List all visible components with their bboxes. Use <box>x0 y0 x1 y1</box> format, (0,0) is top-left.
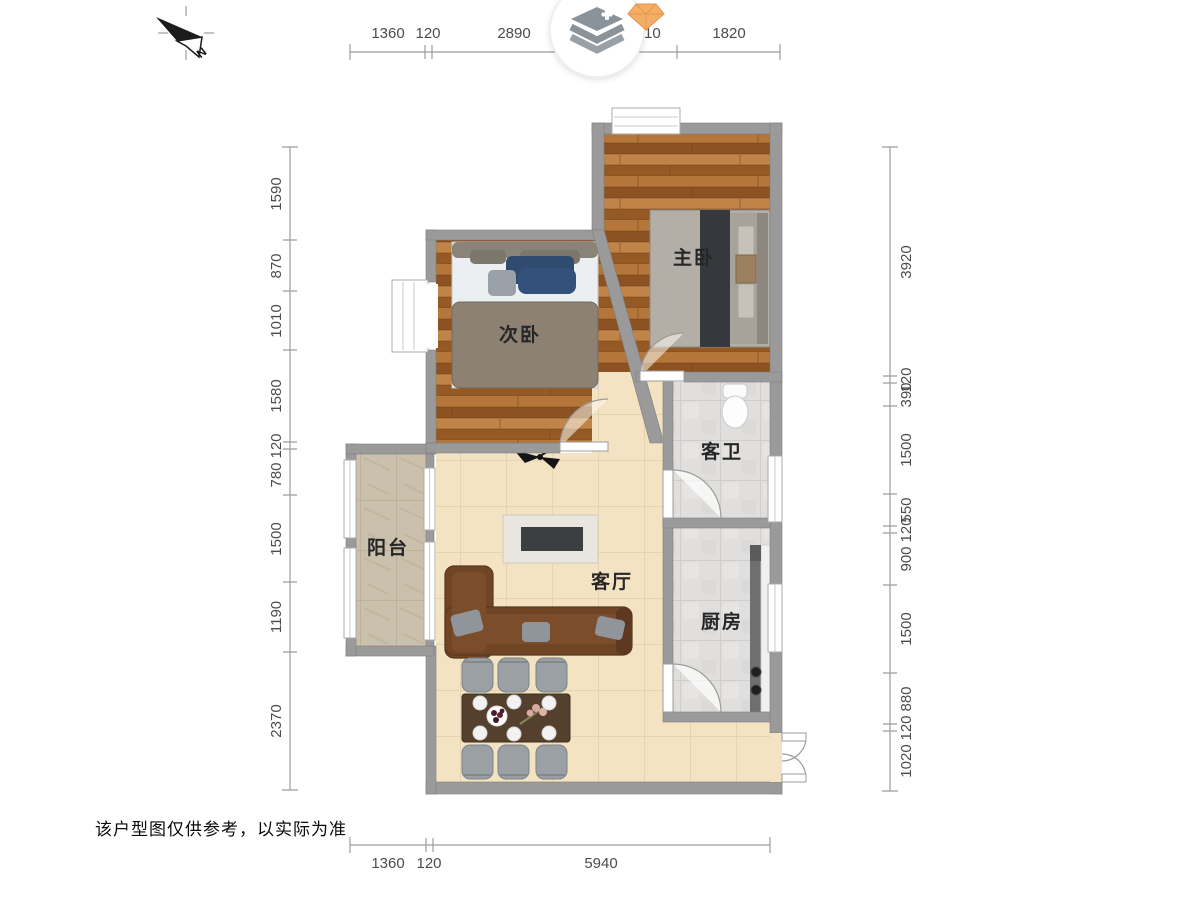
balcony-partition-window <box>424 468 435 640</box>
dimension-chain-bottom <box>350 837 770 853</box>
dim-right-390: 390 <box>898 382 915 407</box>
tv-screen <box>521 527 583 551</box>
second-bed <box>452 242 598 388</box>
dimension-labels-bottom: 1360 120 5940 <box>371 855 617 872</box>
dining-set <box>462 658 570 779</box>
bathroom-window <box>768 456 782 522</box>
dim-top-1360: 1360 <box>371 25 404 42</box>
dim-right-3920: 3920 <box>898 245 915 278</box>
dim-top-2890: 2890 <box>497 25 530 42</box>
living-room-label: 客厅 <box>591 570 633 593</box>
dim-right-1500b: 1500 <box>898 612 915 645</box>
second-bedroom-bay-window <box>392 280 438 352</box>
dim-right-120c: 120 <box>898 715 915 740</box>
balcony-left-window <box>344 460 356 638</box>
dimension-chain-right <box>882 147 898 791</box>
dim-left-780: 780 <box>268 462 285 487</box>
fruit-plate <box>487 706 507 726</box>
dim-right-880: 880 <box>898 686 915 711</box>
dim-right-1500: 1500 <box>898 433 915 466</box>
stove-burner <box>751 667 761 677</box>
dining-chairs-top <box>462 658 567 692</box>
dimension-labels-right: 3920 120 390 1500 550 120 900 1500 880 1… <box>898 245 915 777</box>
floorplan-page: 1360 120 2890 120 200 1010 1820 1360 120… <box>0 0 1200 900</box>
master-bay-window <box>612 108 680 134</box>
dining-chairs-bottom <box>462 745 567 779</box>
dim-left-1010: 1010 <box>268 304 285 337</box>
dim-bottom-120: 120 <box>416 855 441 872</box>
kitchen-counter <box>750 545 770 712</box>
dim-bottom-5940: 5940 <box>584 855 617 872</box>
master-bedroom-label: 主卧 <box>673 247 715 269</box>
dim-left-1580: 1580 <box>268 379 285 412</box>
floorplan-drawing: 1360 120 2890 120 200 1010 1820 1360 120… <box>0 0 1200 900</box>
dim-right-1020: 1020 <box>898 744 915 777</box>
dim-bottom-1360: 1360 <box>371 855 404 872</box>
dim-right-900: 900 <box>898 546 915 571</box>
disclaimer-text: 该户型图仅供参考，以实际为准 <box>95 820 347 839</box>
balcony-label: 阳台 <box>367 536 409 559</box>
dim-top-1820: 1820 <box>712 25 745 42</box>
dim-top-120: 120 <box>415 25 440 42</box>
dim-left-870: 870 <box>268 253 285 278</box>
kitchen-window <box>768 584 782 652</box>
dim-right-120b: 120 <box>898 517 915 542</box>
stove-burner <box>751 685 761 695</box>
dim-left-2370: 2370 <box>268 704 285 737</box>
north-arrow-icon: N <box>156 6 214 61</box>
master-bed <box>650 210 770 347</box>
dim-left-1500: 1500 <box>268 522 285 555</box>
tv-console <box>503 515 598 563</box>
toilet <box>722 384 748 428</box>
bathroom-label: 客卫 <box>701 440 743 463</box>
kitchen-label: 厨房 <box>701 610 743 633</box>
dim-left-1190: 1190 <box>268 601 285 633</box>
dim-left-1590: 1590 <box>268 177 285 210</box>
entry-double-door <box>770 733 806 782</box>
north-label: N <box>194 45 209 61</box>
dim-left-120: 120 <box>268 433 285 458</box>
dimension-labels-left: 1590 870 1010 1580 120 780 1500 1190 237… <box>268 177 285 737</box>
second-bedroom-label: 次卧 <box>499 323 541 346</box>
